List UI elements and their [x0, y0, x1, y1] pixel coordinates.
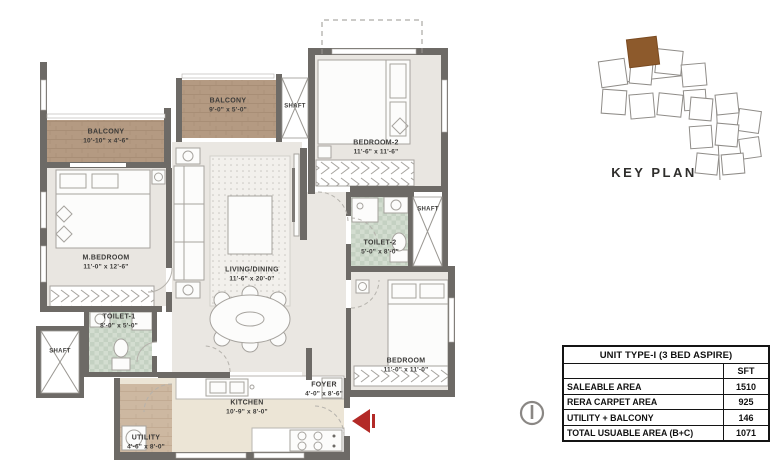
unit-area-table: UNIT TYPE-I (3 BED ASPIRE) SFT SALEABLE … [562, 345, 770, 442]
floorplan-page: BALCONY 10'-10" x 4'-6" BALCONY 9'-0" x … [0, 0, 771, 466]
coffee-table [228, 196, 272, 254]
m-bedroom-wardrobe [50, 286, 154, 308]
bedroom2-wardrobe [316, 160, 414, 186]
m-bedroom-side-table [152, 170, 165, 184]
floor-plan [0, 0, 520, 466]
room-balcony-1 [47, 120, 164, 162]
area-table-unit-header: SFT [724, 364, 768, 379]
table-row: UTILITY + BALCONY 146 [564, 410, 768, 426]
bedroom-wardrobe [354, 366, 448, 386]
area-table-header-row: SFT [564, 364, 768, 380]
room-balcony-2 [182, 80, 276, 138]
bedroom-side-table [356, 280, 369, 293]
key-plan-title: KEY PLAN [611, 165, 697, 180]
table-row: TOTAL USUABLE AREA (B+C) 1071 [564, 426, 768, 441]
area-table-title: UNIT TYPE-I (3 BED ASPIRE) [564, 347, 768, 364]
key-plan-highlighted-unit [626, 36, 659, 67]
bedroom2-side-table [318, 146, 331, 158]
table-row: RERA CARPET AREA 925 [564, 395, 768, 411]
m-bedroom-bed [56, 170, 150, 248]
table-row: SALEABLE AREA 1510 [564, 379, 768, 395]
area-table-header-spacer [564, 364, 724, 379]
washing-machine-icon [122, 426, 146, 450]
bedroom2-bed [318, 60, 410, 144]
fridge-icon [322, 378, 342, 398]
living-sofa [174, 148, 204, 298]
tv-icon [292, 168, 295, 222]
entry-arrow-icon [352, 409, 375, 433]
dining-table [210, 286, 290, 352]
north-arrow-icon [517, 398, 547, 428]
bedroom-bed [388, 280, 448, 366]
stove-icon [290, 430, 342, 451]
